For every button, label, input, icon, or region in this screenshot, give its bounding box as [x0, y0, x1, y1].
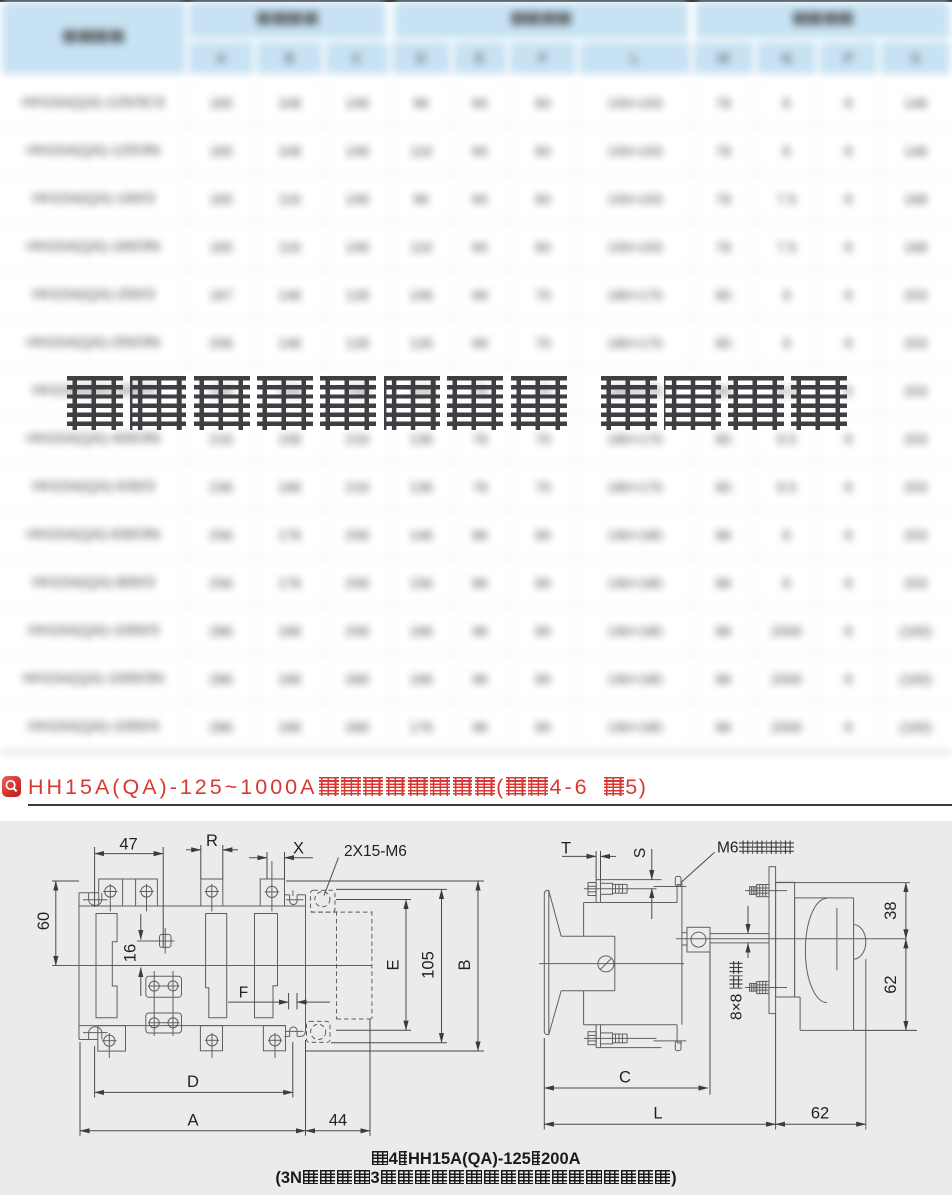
svg-text:62: 62	[882, 975, 900, 993]
svg-text:2X15-M6: 2X15-M6	[344, 843, 407, 860]
svg-text:8×8: 8×8	[729, 994, 746, 1020]
svg-text:B: B	[456, 959, 474, 970]
svg-text:44: 44	[329, 1112, 347, 1130]
svg-text:M6: M6	[717, 840, 739, 857]
svg-text:R: R	[206, 832, 218, 850]
svg-text:A: A	[187, 1112, 198, 1130]
svg-text:F: F	[239, 985, 248, 1002]
svg-text:105: 105	[420, 951, 438, 979]
svg-text:60: 60	[35, 912, 53, 930]
svg-text:47: 47	[119, 836, 137, 854]
svg-text:T: T	[561, 840, 571, 858]
svg-text:62: 62	[811, 1105, 829, 1123]
svg-text:C: C	[619, 1069, 631, 1087]
svg-text:16: 16	[122, 944, 140, 962]
svg-text:E: E	[385, 959, 403, 970]
svg-text:S: S	[632, 848, 649, 858]
svg-text:D: D	[187, 1073, 199, 1091]
svg-text:L: L	[653, 1105, 662, 1123]
svg-text:X: X	[293, 840, 304, 858]
svg-text:38: 38	[882, 902, 900, 920]
